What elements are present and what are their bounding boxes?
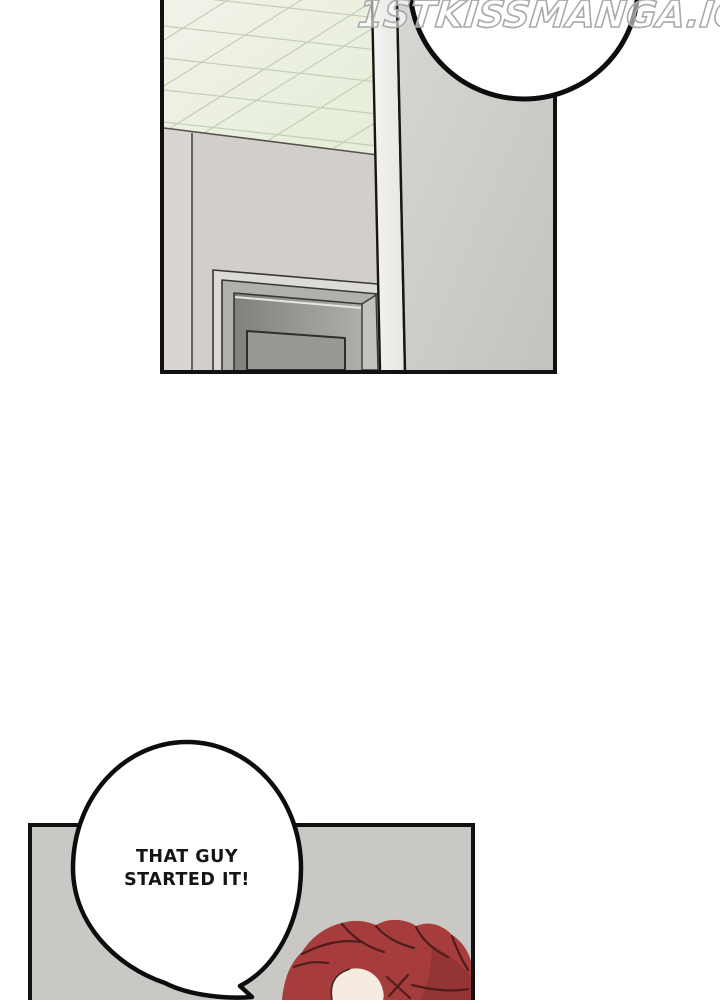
- speech-bubble-top: [398, 0, 650, 106]
- speech-text-line1: THAT GUY: [94, 846, 280, 869]
- speech-text-line2: STARTED IT!: [94, 869, 280, 892]
- door-frame: [213, 270, 378, 370]
- manga-page: { "watermark": { "text": "1STKISSMANGA.I…: [0, 0, 720, 1000]
- speech-text: THAT GUY STARTED IT!: [94, 846, 280, 892]
- left-wall-edge: [164, 128, 192, 370]
